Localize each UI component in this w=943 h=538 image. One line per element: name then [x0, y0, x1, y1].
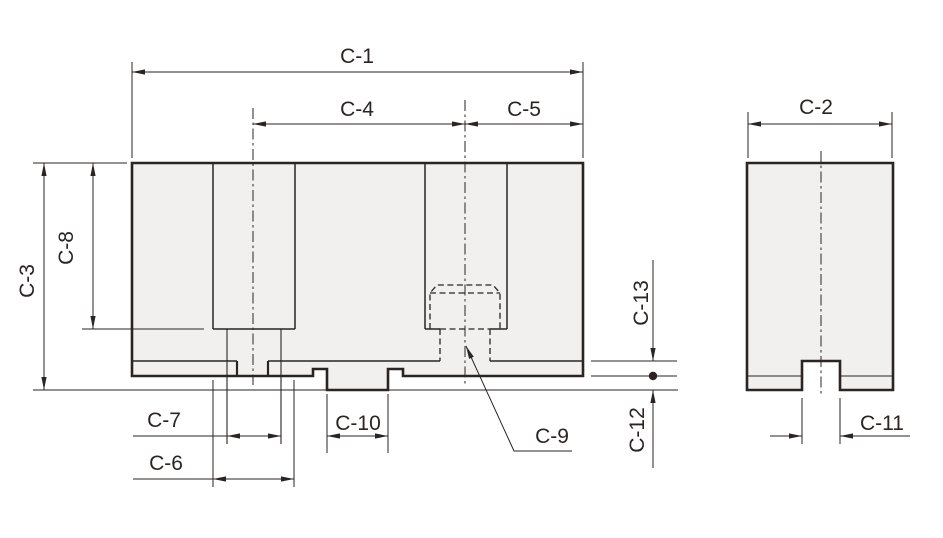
dim-label-c8: C-8	[55, 231, 78, 265]
dimension-c10: C-10	[327, 394, 388, 453]
dim-label-c5: C-5	[507, 98, 541, 121]
dim-label-c11: C-11	[860, 412, 904, 435]
technical-drawing-canvas: C-1 C-4 C-5 C-2 C-3 C-8	[0, 0, 943, 538]
c13-arrow-down	[650, 348, 655, 361]
c2-arrow-right	[879, 121, 892, 126]
c6-arrow-left	[213, 476, 226, 481]
dimension-c7: C-7	[133, 409, 281, 439]
dimension-c11: C-11	[770, 398, 910, 444]
c12-arrow-up	[650, 390, 655, 403]
c5-arrow-left	[465, 121, 478, 126]
side-view-outline	[747, 163, 893, 390]
reference-point-dot	[649, 372, 657, 380]
c4-arrow-left	[253, 121, 266, 126]
dimension-c12: C-12	[626, 390, 656, 468]
c3-arrow-top	[41, 163, 46, 176]
c7-arrow-left	[227, 433, 240, 438]
reference-lines-right	[591, 361, 677, 380]
dimension-c2: C-2	[748, 96, 892, 158]
dimension-drawing: C-1 C-4 C-5 C-2 C-3 C-8	[0, 0, 943, 538]
dim-label-c13: C-13	[630, 280, 653, 326]
dim-label-c1: C-1	[340, 45, 374, 68]
c4-arrow-right	[452, 121, 465, 126]
c7-arrow-right	[268, 433, 281, 438]
dimension-c4: C-4	[253, 98, 465, 127]
dimension-c5: C-5	[465, 98, 583, 127]
dimension-c6: C-6	[133, 380, 294, 487]
dim-label-c10: C-10	[335, 412, 381, 435]
c11-arrow-right	[840, 433, 853, 438]
front-view-outline	[132, 163, 583, 390]
c6-arrow-right	[281, 476, 294, 481]
c1-arrow-right	[570, 69, 583, 74]
front-view	[132, 100, 583, 444]
dimension-c13: C-13	[630, 260, 656, 361]
c1-arrow-left	[132, 69, 145, 74]
dim-label-c7: C-7	[147, 409, 181, 432]
c8-arrow-top	[90, 163, 95, 176]
c5-arrow-right	[570, 121, 583, 126]
dim-label-c2: C-2	[799, 96, 833, 119]
c11-arrow-left	[789, 433, 802, 438]
side-view	[747, 151, 893, 397]
c3-arrow-bottom	[41, 377, 46, 390]
c8-arrow-bottom	[90, 316, 95, 329]
c2-arrow-left	[748, 121, 761, 126]
dim-label-c12: C-12	[626, 407, 649, 453]
dim-label-c9: C-9	[535, 425, 569, 448]
dim-label-c6: C-6	[149, 452, 183, 475]
dim-label-c4: C-4	[340, 98, 374, 121]
dim-label-c3: C-3	[16, 264, 39, 298]
